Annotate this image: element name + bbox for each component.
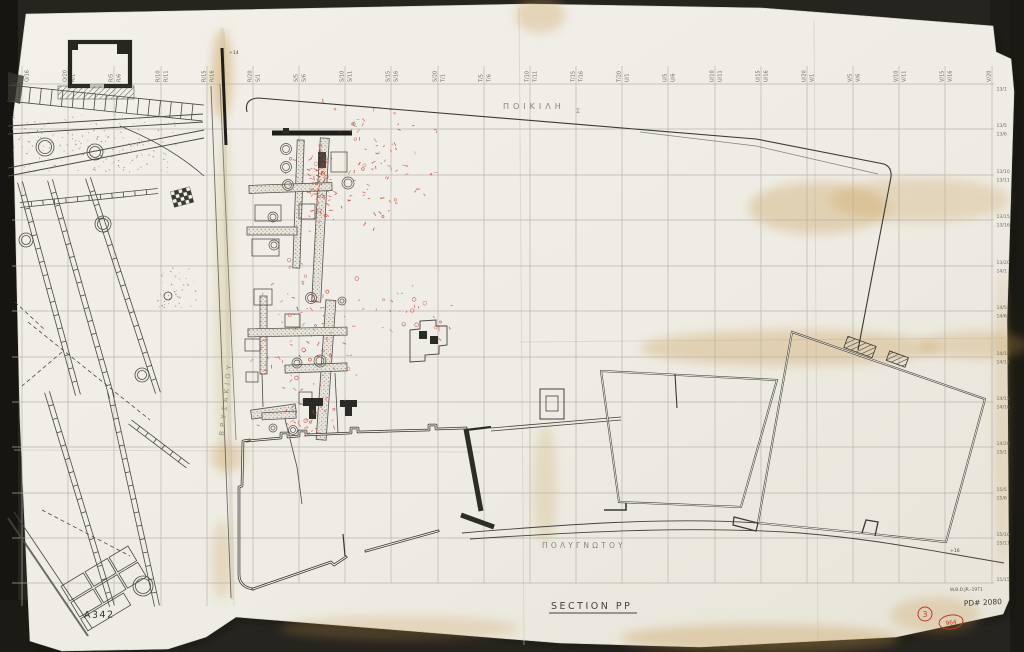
grid-col-label: T/10 bbox=[525, 71, 531, 83]
stipple-dot bbox=[83, 154, 84, 155]
grid-col-label: S/15 bbox=[386, 71, 392, 82]
stipple-dot bbox=[122, 115, 123, 116]
stipple-dot bbox=[161, 129, 162, 130]
stipple-dot bbox=[168, 295, 169, 296]
stipple-dot bbox=[104, 130, 105, 131]
stipple-dot bbox=[39, 157, 40, 158]
stipple-dot bbox=[132, 160, 133, 161]
stipple-dot bbox=[12, 155, 13, 156]
block-divider bbox=[100, 194, 101, 199]
grid-row-label: 13/1 bbox=[997, 87, 1007, 93]
stipple-dot bbox=[52, 164, 53, 165]
grid-row-label: 14/11 bbox=[997, 360, 1010, 366]
stipple-dot bbox=[171, 117, 172, 118]
paper-stain bbox=[212, 520, 232, 600]
grid-col-label: V/16 bbox=[948, 71, 954, 82]
stipple-dot bbox=[26, 153, 27, 154]
stipple-dot bbox=[163, 159, 164, 160]
stipple-dot bbox=[176, 290, 177, 291]
stipple-dot bbox=[172, 132, 173, 133]
block-divider bbox=[123, 192, 124, 197]
stipple-dot bbox=[178, 297, 179, 298]
stipple-dot bbox=[80, 147, 81, 148]
stipple-dot bbox=[141, 140, 142, 141]
stipple-dot bbox=[169, 298, 170, 299]
stipple-dot bbox=[22, 147, 23, 148]
stipple-dot bbox=[105, 141, 106, 142]
stipple-dot bbox=[175, 275, 176, 276]
grid-row-label: 13/20 bbox=[997, 260, 1010, 266]
stipple-dot bbox=[107, 156, 108, 157]
stipple-dot bbox=[101, 141, 102, 142]
stipple-dot bbox=[13, 115, 14, 116]
block-divider bbox=[112, 193, 113, 198]
stipple-dot bbox=[162, 275, 163, 276]
red-mark bbox=[365, 149, 367, 150]
stipple-dot bbox=[107, 137, 108, 138]
stipple-dot bbox=[106, 158, 107, 159]
stipple-dot bbox=[119, 150, 120, 151]
stipple-dot bbox=[161, 274, 162, 275]
stipple-dot bbox=[82, 135, 83, 136]
stipple-dot bbox=[48, 142, 49, 143]
stipple-dot bbox=[48, 158, 49, 159]
grid-col-label: R/6 bbox=[117, 74, 123, 82]
stipple-dot bbox=[185, 278, 186, 279]
grid-row-label: 14/6 bbox=[997, 314, 1007, 320]
red-mark bbox=[354, 170, 355, 173]
stipple-dot bbox=[27, 141, 28, 142]
grid-col-label: Q/20 bbox=[63, 70, 69, 82]
stipple-dot bbox=[68, 133, 69, 134]
stipple-dot bbox=[81, 155, 82, 156]
stipple-dot bbox=[34, 121, 35, 122]
street-label-poikile-suffix: Σ bbox=[576, 107, 580, 115]
grid-col-label: S/6 bbox=[302, 74, 308, 82]
archaeological-plan-scan: Q/16Q/20R/1R/5R/6R/10R/11R/15R/16R/20S/1… bbox=[0, 0, 1024, 652]
stipple-dot bbox=[153, 156, 154, 157]
grid-col-label: U/20 bbox=[802, 70, 808, 82]
stipple-dot bbox=[94, 167, 95, 168]
stipple-dot bbox=[170, 271, 171, 272]
stipple-dot bbox=[114, 118, 115, 119]
stipple-dot bbox=[37, 140, 38, 141]
stipple-dot bbox=[163, 290, 164, 291]
stipple-dot bbox=[174, 125, 175, 126]
grid-col-label: U/5 bbox=[663, 73, 669, 82]
stipple-dot bbox=[146, 164, 147, 165]
stipple-dot bbox=[139, 138, 140, 139]
stipple-dot bbox=[124, 167, 125, 168]
stipple-dot bbox=[105, 170, 106, 171]
stipple-dot bbox=[168, 291, 169, 292]
grid-col-label: T/5 bbox=[479, 74, 485, 83]
stipple-dot bbox=[34, 171, 35, 172]
stipple-dot bbox=[163, 273, 164, 274]
grid-col-label: V/10 bbox=[894, 71, 900, 82]
stipple-dot bbox=[111, 156, 112, 157]
stipple-dot bbox=[20, 137, 21, 138]
grid-col-label: R/10 bbox=[156, 70, 162, 82]
block-divider bbox=[66, 198, 67, 203]
stipple-dot bbox=[26, 132, 27, 133]
stipple-dot bbox=[183, 284, 184, 285]
stipple-dot bbox=[61, 160, 62, 161]
red-stamp-circle-number: 3 bbox=[923, 610, 928, 619]
stipple-dot bbox=[113, 162, 114, 163]
stipple-dot bbox=[40, 137, 41, 138]
stipple-dot bbox=[95, 170, 96, 171]
grid-col-label: V/6 bbox=[856, 74, 862, 82]
grid-col-label: S/5 bbox=[294, 74, 300, 82]
block-divider bbox=[146, 190, 147, 195]
grid-col-label: R/11 bbox=[164, 70, 170, 82]
stipple-dot bbox=[162, 141, 163, 142]
stipple-dot bbox=[111, 163, 112, 164]
stipple-dot bbox=[193, 281, 194, 282]
stipple-dot bbox=[133, 145, 134, 146]
stipple-dot bbox=[92, 157, 93, 158]
stipple-dot bbox=[27, 122, 28, 123]
stipple-dot bbox=[105, 135, 106, 136]
stipple-dot bbox=[108, 136, 109, 137]
stipple-dot bbox=[123, 169, 124, 170]
grid-row-label: 14/20 bbox=[997, 441, 1010, 447]
stipple-dot bbox=[119, 167, 120, 168]
stipple-dot bbox=[175, 276, 176, 277]
stipple-dot bbox=[98, 166, 99, 167]
stipple-dot bbox=[75, 140, 76, 141]
paper-stain bbox=[280, 616, 520, 640]
stipple-dot bbox=[179, 297, 180, 298]
stipple-dot bbox=[97, 139, 98, 140]
block-divider bbox=[31, 201, 32, 206]
stipple-dot bbox=[104, 151, 105, 152]
block-divider bbox=[43, 200, 44, 205]
paper-stain bbox=[620, 624, 900, 652]
stipple-dot bbox=[164, 301, 165, 302]
stipple-dot bbox=[156, 115, 157, 116]
grid-col-label: V/5 bbox=[848, 74, 854, 82]
block-divider bbox=[54, 199, 55, 204]
grid-row-label: 15/11 bbox=[997, 541, 1010, 547]
stipple-dot bbox=[43, 146, 44, 147]
stipple-dot bbox=[88, 132, 89, 133]
stipple-dot bbox=[138, 129, 139, 130]
stipple-dot bbox=[160, 294, 161, 295]
stipple-dot bbox=[32, 146, 33, 147]
stipple-dot bbox=[167, 161, 168, 162]
stipple-dot bbox=[119, 152, 120, 153]
stipple-dot bbox=[179, 303, 180, 304]
red-mark bbox=[349, 195, 352, 196]
stipple-dot bbox=[177, 296, 178, 297]
stipple-dot bbox=[195, 299, 196, 300]
stipple-dot bbox=[18, 139, 19, 140]
red-mark bbox=[319, 155, 322, 156]
stipple-dot bbox=[100, 155, 101, 156]
stipple-dot bbox=[48, 131, 49, 132]
red-mark bbox=[380, 198, 384, 199]
stipple-dot bbox=[93, 130, 94, 131]
stipple-dot bbox=[72, 138, 73, 139]
grid-row-label: 13/5 bbox=[997, 123, 1007, 129]
stippled-wall bbox=[262, 411, 296, 420]
stipple-dot bbox=[118, 160, 119, 161]
stipple-dot bbox=[64, 151, 65, 152]
stipple-dot bbox=[175, 294, 176, 295]
stipple-dot bbox=[142, 155, 143, 156]
stipple-dot bbox=[158, 118, 159, 119]
grid-col-label: S/11 bbox=[348, 71, 354, 82]
grid-row-label: 15/10 bbox=[997, 532, 1010, 538]
stipple-dot bbox=[188, 284, 189, 285]
stipple-dot bbox=[39, 158, 40, 159]
stipple-dot bbox=[60, 145, 61, 146]
grid-col-label: T/11 bbox=[533, 71, 539, 83]
red-mark bbox=[312, 293, 313, 296]
stipple-dot bbox=[158, 130, 159, 131]
grid-col-label: Q/16 bbox=[25, 70, 31, 82]
stipple-dot bbox=[162, 305, 163, 306]
stipple-dot bbox=[84, 152, 85, 153]
grid-row-label: 13/11 bbox=[997, 178, 1010, 184]
stipple-dot bbox=[62, 137, 63, 138]
grid-col-label: R/16 bbox=[210, 70, 216, 82]
grid-row-label: 13/10 bbox=[997, 169, 1010, 175]
stipple-dot bbox=[81, 115, 82, 116]
stipple-dot bbox=[181, 307, 182, 308]
stipple-dot bbox=[179, 272, 180, 273]
elevation-mark: +14 bbox=[229, 50, 239, 56]
stipple-dot bbox=[128, 143, 129, 144]
stipple-dot bbox=[87, 152, 88, 153]
stipple-dot bbox=[137, 155, 138, 156]
grid-col-label: V/15 bbox=[940, 71, 946, 82]
grid-col-label: R/15 bbox=[202, 70, 208, 82]
stipple-dot bbox=[167, 167, 168, 168]
stippled-wall bbox=[247, 227, 297, 235]
stipple-dot bbox=[190, 305, 191, 306]
stipple-dot bbox=[94, 169, 95, 170]
stipple-dot bbox=[79, 141, 80, 142]
stipple-dot bbox=[175, 305, 176, 306]
stipple-dot bbox=[141, 154, 142, 155]
stipple-dot bbox=[119, 123, 120, 124]
stipple-dot bbox=[136, 157, 137, 158]
stipple-dot bbox=[53, 134, 54, 135]
grid-row-label: 15/5 bbox=[997, 487, 1007, 493]
stipple-dot bbox=[174, 291, 175, 292]
stipple-dot bbox=[138, 169, 139, 170]
stipple-dot bbox=[49, 147, 50, 148]
stipple-dot bbox=[29, 164, 30, 165]
stipple-dot bbox=[187, 284, 188, 285]
stipple-dot bbox=[43, 150, 44, 151]
stipple-dot bbox=[139, 143, 140, 144]
grid-col-label: T/6 bbox=[487, 74, 493, 83]
stipple-dot bbox=[72, 134, 73, 135]
grid-col-label: U/16 bbox=[764, 70, 770, 82]
stipple-dot bbox=[37, 130, 38, 131]
stipple-dot bbox=[172, 118, 173, 119]
stipple-dot bbox=[72, 117, 73, 118]
grid-col-label: T/16 bbox=[579, 71, 585, 83]
stipple-dot bbox=[79, 148, 80, 149]
stipple-dot bbox=[27, 133, 28, 134]
stipple-dot bbox=[29, 150, 30, 151]
stipple-dot bbox=[148, 116, 149, 117]
grid-col-label: R/20 bbox=[248, 70, 254, 82]
stipple-dot bbox=[130, 163, 131, 164]
stipple-dot bbox=[175, 144, 176, 145]
grid-row-label: 15/6 bbox=[997, 496, 1007, 502]
grid-col-label: V/20 bbox=[987, 71, 993, 82]
grid-col-label: T/15 bbox=[571, 71, 577, 83]
stipple-dot bbox=[122, 150, 123, 151]
grid-col-label: T/20 bbox=[617, 71, 623, 83]
stipple-dot bbox=[146, 114, 147, 115]
stipple-dot bbox=[88, 146, 89, 147]
stipple-dot bbox=[157, 300, 158, 301]
stipple-dot bbox=[130, 145, 131, 146]
stipple-dot bbox=[40, 114, 41, 115]
grid-col-label: S/10 bbox=[340, 71, 346, 82]
grid-row-label: 14/15 bbox=[997, 396, 1010, 402]
stipple-dot bbox=[38, 137, 39, 138]
red-mark bbox=[376, 309, 377, 311]
stipple-dot bbox=[167, 171, 168, 172]
stipple-dot bbox=[103, 161, 104, 162]
stipple-dot bbox=[118, 165, 119, 166]
stipple-dot bbox=[28, 170, 29, 171]
stipple-dot bbox=[126, 152, 127, 153]
grid-col-label: S/16 bbox=[394, 71, 400, 82]
stipple-dot bbox=[48, 122, 49, 123]
stipple-dot bbox=[12, 150, 13, 151]
stipple-dot bbox=[163, 153, 164, 154]
stipple-dot bbox=[51, 142, 52, 143]
grid-row-label: 14/10 bbox=[997, 351, 1010, 357]
street-label-poikile: ΠΟΙΚΙΛΗ bbox=[503, 102, 565, 111]
block-divider bbox=[135, 191, 136, 196]
stipple-dot bbox=[28, 141, 29, 142]
stipple-dot bbox=[182, 289, 183, 290]
stipple-dot bbox=[143, 144, 144, 145]
grid-row-label: 13/15 bbox=[997, 214, 1010, 220]
stipple-dot bbox=[148, 154, 149, 155]
grid-col-label: U/10 bbox=[710, 70, 716, 82]
grid-col-label: U/6 bbox=[671, 73, 677, 82]
stipple-dot bbox=[180, 297, 181, 298]
stipple-dot bbox=[112, 128, 113, 129]
grid-col-label: R/5 bbox=[109, 74, 115, 82]
grid-row-label: 15/1 bbox=[997, 450, 1007, 456]
stipple-dot bbox=[168, 303, 169, 304]
grid-col-label: V/1 bbox=[810, 74, 816, 82]
stippled-wall bbox=[248, 327, 347, 337]
stipple-dot bbox=[34, 137, 35, 138]
stipple-dot bbox=[162, 124, 163, 125]
stipple-dot bbox=[91, 124, 92, 125]
grid-row-label: 14/5 bbox=[997, 305, 1007, 311]
stipple-dot bbox=[137, 144, 138, 145]
block-divider bbox=[89, 196, 90, 201]
stipple-dot bbox=[64, 129, 65, 130]
stipple-dot bbox=[122, 149, 123, 150]
stipple-dot bbox=[140, 167, 141, 168]
stipple-dot bbox=[133, 123, 134, 124]
stipple-dot bbox=[66, 164, 67, 165]
stipple-dot bbox=[142, 142, 143, 143]
stipple-dot bbox=[24, 128, 25, 129]
stipple-dot bbox=[153, 150, 154, 151]
mosaic-cell bbox=[189, 198, 194, 203]
stipple-dot bbox=[109, 169, 110, 170]
stipple-dot bbox=[24, 166, 25, 167]
stipple-dot bbox=[137, 126, 138, 127]
red-mark bbox=[382, 327, 384, 328]
grid-row-label: 14/1 bbox=[997, 269, 1007, 275]
stipple-dot bbox=[148, 142, 149, 143]
grid-row-label: 15/15 bbox=[997, 577, 1010, 583]
stipple-dot bbox=[172, 267, 173, 268]
stipple-dot bbox=[195, 290, 196, 291]
stipple-dot bbox=[78, 170, 79, 171]
street-label-polygnotou: ΠΟΛΥΓΝΩΤΟΥ bbox=[542, 541, 626, 550]
grid-col-label: V/11 bbox=[902, 71, 908, 82]
stipple-dot bbox=[112, 149, 113, 150]
grid-col-label: U/15 bbox=[756, 70, 762, 82]
grid-row-label: 14/16 bbox=[997, 405, 1010, 411]
stipple-dot bbox=[149, 140, 150, 141]
stipple-dot bbox=[102, 156, 103, 157]
block-divider bbox=[77, 197, 78, 202]
stipple-dot bbox=[188, 268, 189, 269]
grid-col-label: S/20 bbox=[433, 71, 439, 82]
credit-text: W.B.D.JR.-1971 bbox=[950, 586, 983, 593]
stipple-dot bbox=[96, 123, 97, 124]
stipple-dot bbox=[64, 119, 65, 120]
stipple-dot bbox=[87, 140, 88, 141]
stipple-dot bbox=[162, 282, 163, 283]
stipple-dot bbox=[164, 304, 165, 305]
stipple-dot bbox=[75, 155, 76, 156]
stipple-dot bbox=[93, 150, 94, 151]
stipple-dot bbox=[137, 145, 138, 146]
stipple-dot bbox=[43, 163, 44, 164]
stipple-dot bbox=[144, 122, 145, 123]
stipple-dot bbox=[14, 147, 15, 148]
grid-row-label: 13/16 bbox=[997, 223, 1010, 229]
grid-col-label: S/1 bbox=[256, 74, 262, 82]
stipple-dot bbox=[147, 116, 148, 117]
stipple-dot bbox=[49, 170, 50, 171]
stipple-dot bbox=[51, 168, 52, 169]
stipple-dot bbox=[174, 122, 175, 123]
stipple-dot bbox=[92, 143, 93, 144]
stipple-dot bbox=[92, 154, 93, 155]
stipple-dot bbox=[130, 149, 131, 150]
stipple-dot bbox=[40, 144, 41, 145]
stipple-dot bbox=[160, 170, 161, 171]
stipple-dot bbox=[159, 306, 160, 307]
grid-col-label: T/1 bbox=[441, 74, 447, 83]
stipple-dot bbox=[54, 165, 55, 166]
stipple-dot bbox=[41, 132, 42, 133]
stipple-dot bbox=[129, 171, 130, 172]
stipple-dot bbox=[65, 120, 66, 121]
